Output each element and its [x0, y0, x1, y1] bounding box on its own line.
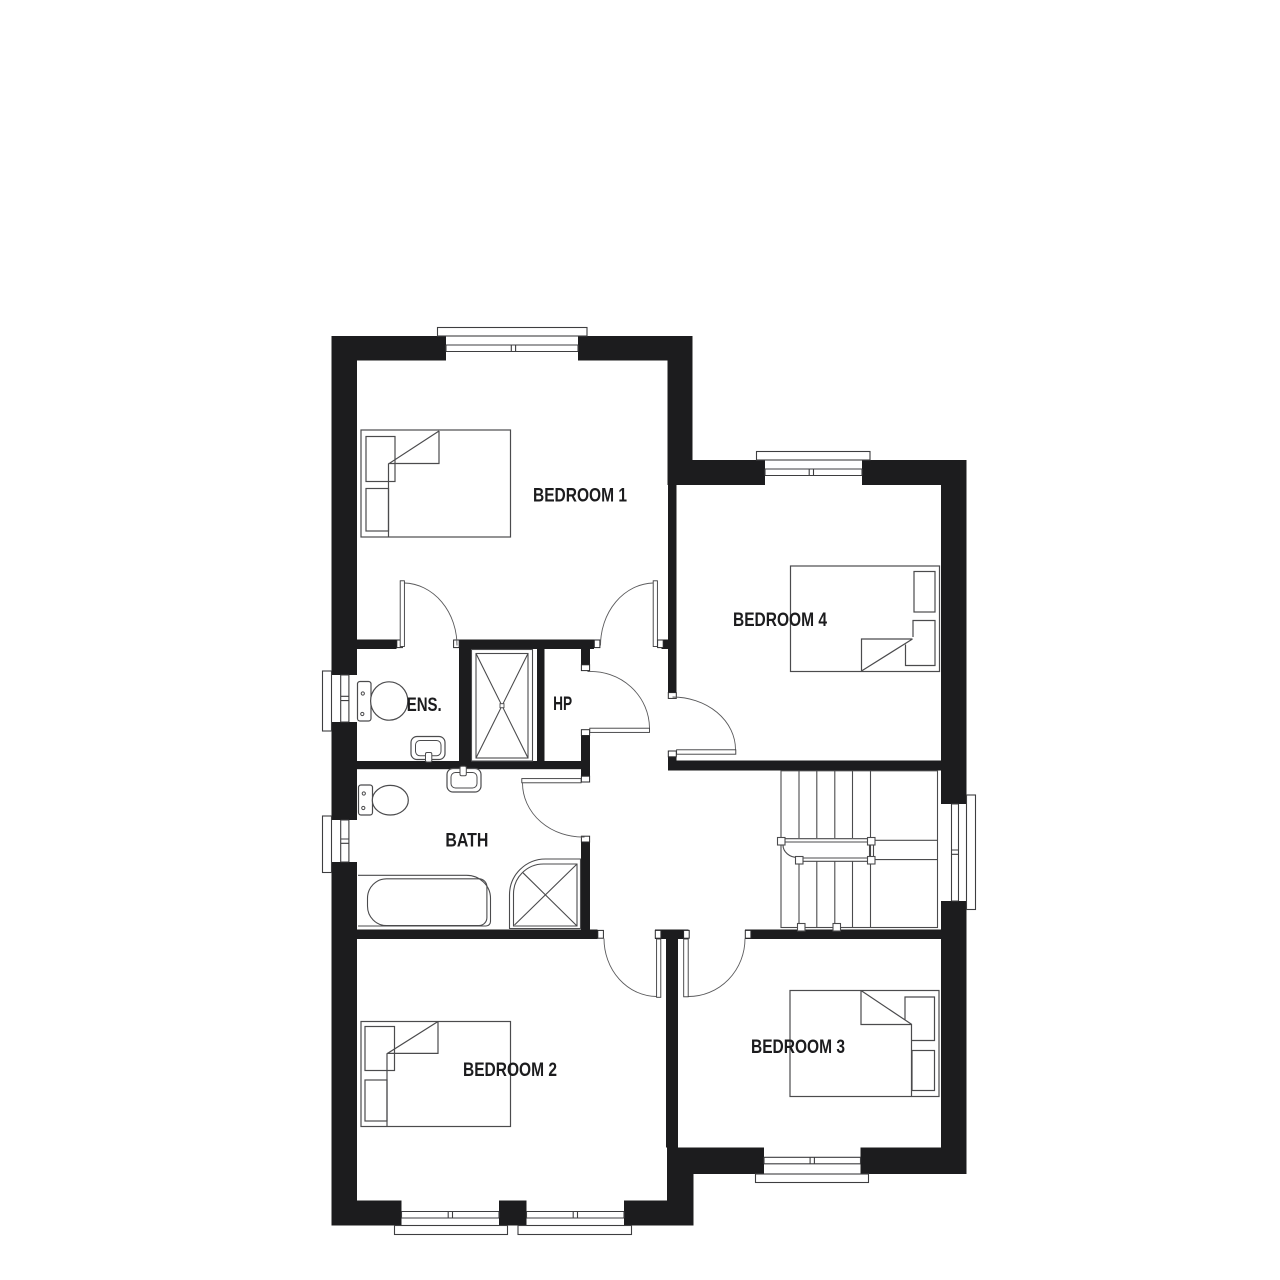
- svg-text:BEDROOM 3: BEDROOM 3: [751, 1037, 845, 1058]
- svg-text:ENS.: ENS.: [407, 695, 442, 716]
- svg-text:BEDROOM 4: BEDROOM 4: [733, 610, 827, 631]
- svg-text:HP: HP: [553, 694, 572, 715]
- svg-text:BATH: BATH: [445, 830, 488, 851]
- svg-text:BEDROOM 2: BEDROOM 2: [463, 1060, 557, 1081]
- svg-text:BEDROOM 1: BEDROOM 1: [533, 486, 627, 507]
